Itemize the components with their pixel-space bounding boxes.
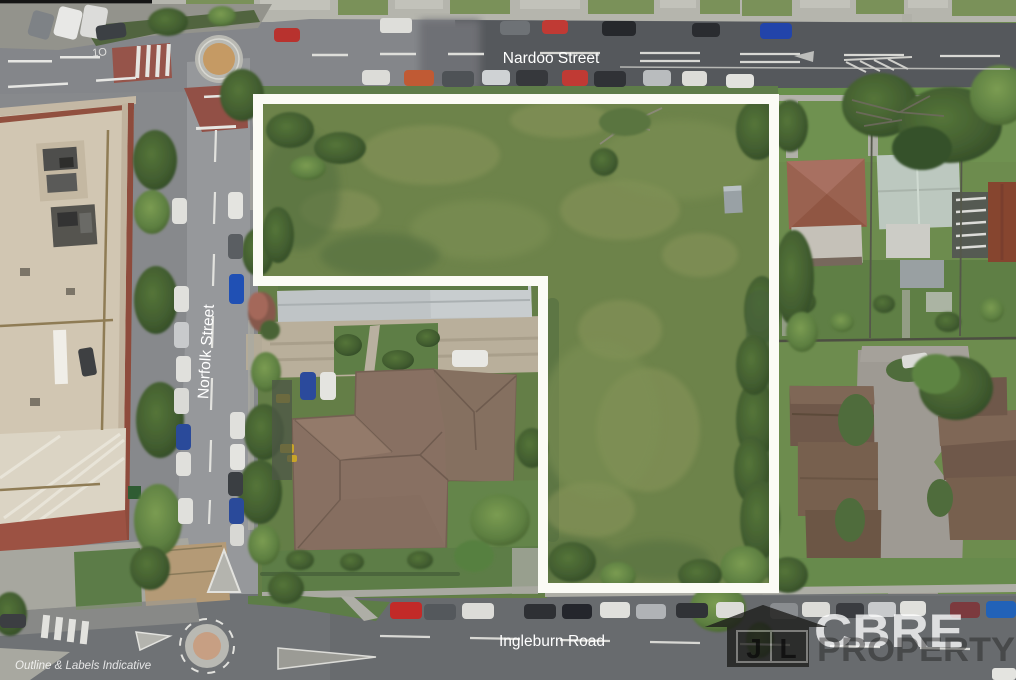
svg-text:1O: 1O	[92, 46, 108, 59]
svg-text:L: L	[779, 633, 796, 664]
svg-text:Outline & Labels Indicative: Outline & Labels Indicative	[15, 660, 151, 672]
svg-text:PROPERTY: PROPERTY	[817, 631, 1015, 669]
svg-text:Ingleburn Road: Ingleburn Road	[499, 633, 605, 650]
svg-text:J: J	[746, 633, 762, 664]
svg-text:Nardoo Street: Nardoo Street	[503, 50, 600, 67]
